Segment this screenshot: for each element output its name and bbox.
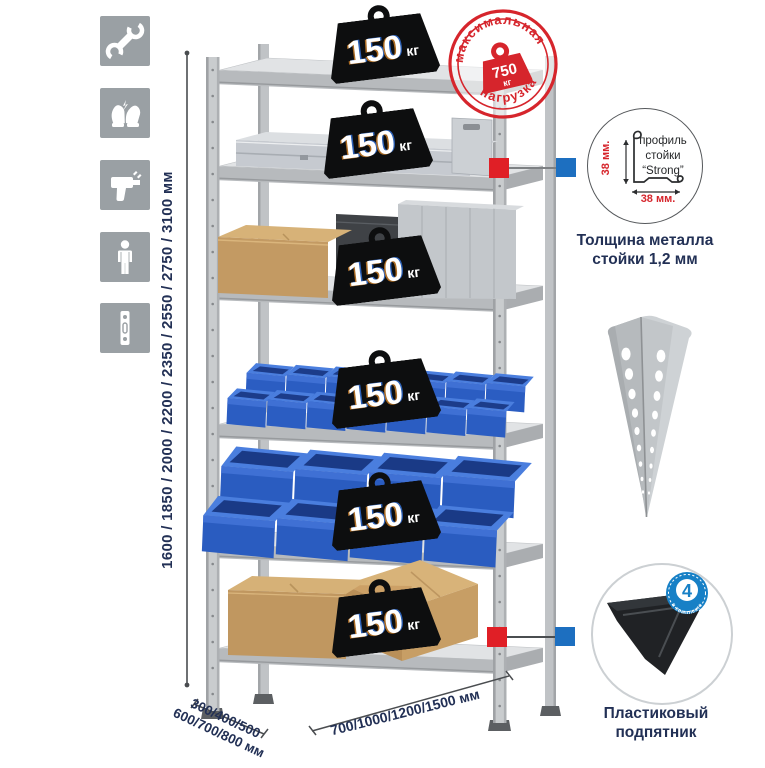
load-unit: кг (398, 137, 413, 154)
plastic-foot-callout: 4 в комплекте (591, 563, 733, 705)
plastic-foot-image (593, 565, 731, 703)
load-value: 150 (345, 29, 404, 68)
foot-caption: Пластиковый подпятник (583, 704, 729, 742)
weight-body: 150 кг (316, 106, 434, 179)
included-count-value: 4 (682, 581, 692, 601)
load-value: 150 (338, 124, 397, 163)
height-dimension-line (185, 51, 190, 688)
load-unit: кг (406, 387, 421, 404)
profile-detail-callout: 38 мм. 38 мм. профиль стойки “Strong” (587, 108, 703, 224)
shelf-load-badge-6: 150 кг (323, 572, 443, 661)
load-value: 150 (346, 374, 405, 413)
foot-callout-connector (487, 627, 575, 647)
shelf-load-badge-4: 150 кг (323, 343, 443, 432)
shelf-load-badge-1: 150 кг (322, 0, 442, 88)
load-value: 150 (346, 603, 405, 642)
load-unit: кг (406, 264, 421, 281)
profile-height-dimension: 38 мм. (600, 132, 612, 184)
included-count-badge: 4 в комплекте (665, 571, 709, 615)
load-unit: кг (406, 616, 421, 633)
thickness-caption-line2: стойки 1,2 мм (575, 250, 715, 269)
thickness-caption: Толщина металла стойки 1,2 мм (575, 231, 715, 269)
profile-width-dimension: 38 мм. (628, 193, 688, 205)
weight-body: 150 кг (324, 585, 442, 658)
weight-body: 150 кг (324, 233, 442, 306)
weight-body: 150 кг (324, 356, 442, 429)
foot-caption-line1: Пластиковый (583, 704, 729, 723)
profile-label-line3: “Strong” (632, 164, 694, 179)
load-unit: кг (406, 509, 421, 526)
product-infographic-page: { "page": {"background": "#ffffff"}, "le… (0, 0, 765, 765)
profile-label-line2: стойки (632, 149, 694, 164)
weight-body: 150 кг (324, 478, 442, 551)
corner-post-image (608, 316, 692, 517)
profile-label: профиль стойки “Strong” (632, 134, 694, 179)
foot-caption-line2: подпятник (583, 723, 729, 742)
shelf-load-badge-5: 150 кг (323, 465, 443, 554)
thickness-caption-line1: Толщина металла (575, 231, 715, 250)
load-unit: кг (405, 42, 420, 59)
weight-body: 150 кг (323, 11, 441, 84)
load-value: 150 (346, 251, 405, 290)
profile-label-line1: профиль (632, 134, 694, 149)
load-value: 150 (346, 496, 405, 535)
shelf-load-badge-3: 150 кг (323, 220, 443, 309)
shelf-load-badge-2: 150 кг (315, 93, 435, 182)
included-count-badge-graphic: 4 в комплекте (665, 571, 709, 615)
